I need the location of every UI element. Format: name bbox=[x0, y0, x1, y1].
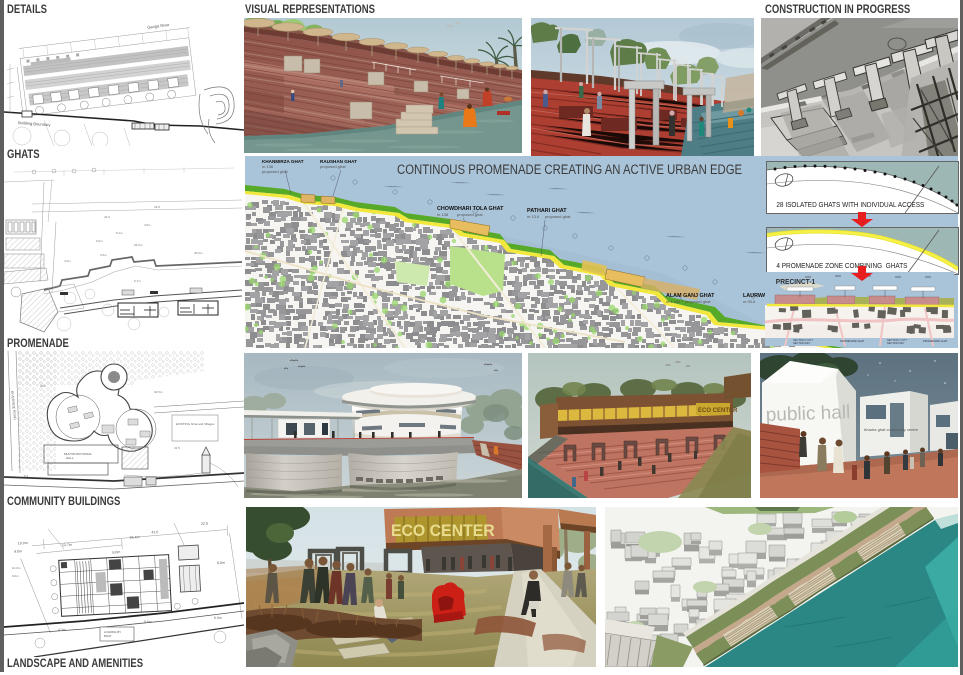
svg-text:40.5m: 40.5m bbox=[154, 390, 163, 394]
svg-text:BOAT: BOAT bbox=[104, 634, 112, 638]
svg-text:EXISTING Ghat and Villages: EXISTING Ghat and Villages bbox=[176, 422, 215, 426]
svg-text:44.0: 44.0 bbox=[104, 215, 110, 219]
svg-text:6.0m: 6.0m bbox=[217, 561, 225, 565]
svg-text:12.7m: 12.7m bbox=[62, 543, 72, 548]
svg-text:28 ISOLATED GHATS WITH INDIVID: 28 ISOLATED GHATS WITH INDIVIDUAL ACCESS bbox=[776, 202, 924, 210]
svg-text:3.0m: 3.0m bbox=[100, 253, 107, 257]
svg-text:ECO CENTER: ECO CENTER bbox=[391, 522, 495, 540]
svg-text:8.0m: 8.0m bbox=[112, 550, 120, 554]
svg-text:9.0m: 9.0m bbox=[12, 574, 19, 578]
svg-text:public hall: public hall bbox=[765, 402, 850, 426]
svg-text:4.2m: 4.2m bbox=[64, 259, 71, 263]
svg-text:43.8: 43.8 bbox=[154, 205, 160, 209]
svg-text:bhadra ghat community centre: bhadra ghat community centre bbox=[864, 427, 919, 432]
svg-text:ECO CENTER: ECO CENTER bbox=[698, 408, 738, 414]
svg-text:SECTION KEY: SECTION KEY bbox=[887, 341, 905, 345]
svg-text:9.0m: 9.0m bbox=[96, 239, 103, 243]
svg-text:22.5: 22.5 bbox=[201, 522, 208, 526]
svg-text:8.5m: 8.5m bbox=[144, 620, 152, 624]
svg-text:36.6: 36.6 bbox=[40, 384, 46, 388]
svg-text:8.4: 8.4 bbox=[24, 474, 29, 478]
svg-text:30.0m: 30.0m bbox=[194, 251, 203, 255]
svg-text:26.0m: 26.0m bbox=[134, 243, 143, 247]
svg-text:PROMENADE GHAT: PROMENADE GHAT bbox=[840, 339, 865, 343]
svg-text:HALL: HALL bbox=[66, 456, 74, 460]
svg-text:41.0: 41.0 bbox=[151, 530, 158, 534]
svg-text:9.0m: 9.0m bbox=[14, 549, 22, 553]
svg-text:Ganga River: Ganga River bbox=[147, 24, 171, 30]
svg-text:SECTION KEY: SECTION KEY bbox=[793, 341, 811, 345]
svg-text:PRECINCT-1: PRECINCT-1 bbox=[776, 279, 816, 286]
svg-text:26.4m: 26.4m bbox=[130, 535, 140, 540]
svg-text:PROMENADE GHAT: PROMENADE GHAT bbox=[923, 339, 948, 343]
svg-text:8.1m: 8.1m bbox=[116, 231, 123, 235]
svg-text:10.0m: 10.0m bbox=[18, 541, 28, 546]
svg-text:10.0m: 10.0m bbox=[12, 566, 21, 570]
svg-text:4 PROMENADE ZONE COMBINING GH: 4 PROMENADE ZONE COMBINING GHATS bbox=[776, 263, 907, 271]
svg-text:6.7m: 6.7m bbox=[134, 279, 141, 283]
svg-text:4.5m: 4.5m bbox=[144, 223, 151, 227]
svg-text:6.0m: 6.0m bbox=[214, 616, 222, 620]
svg-text:4.2m: 4.2m bbox=[58, 628, 66, 632]
svg-text:Building Boundary: Building Boundary bbox=[18, 120, 51, 127]
svg-text:31.5: 31.5 bbox=[174, 446, 180, 450]
